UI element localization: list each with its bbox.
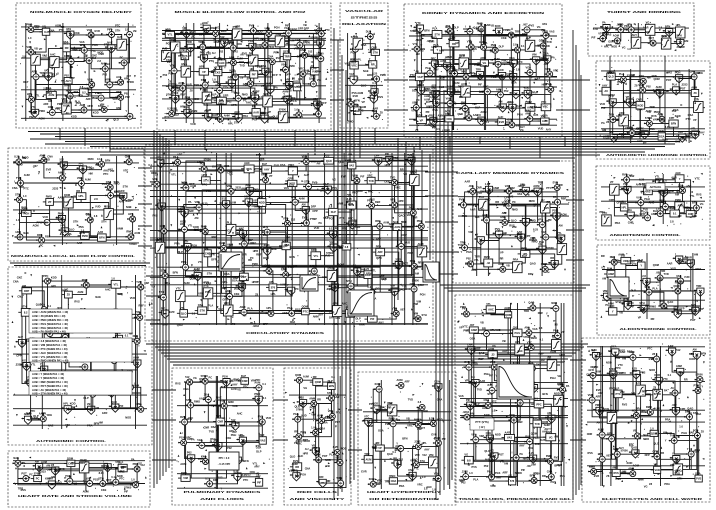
svg-text:VIM: VIM bbox=[182, 26, 187, 30]
svg-text:PGH: PGH bbox=[517, 113, 523, 117]
svg-text:PMO: PMO bbox=[181, 471, 187, 475]
svg-text:QAO: QAO bbox=[687, 407, 693, 411]
svg-text:PLA: PLA bbox=[619, 72, 624, 76]
svg-text:PVS: PVS bbox=[252, 117, 257, 121]
svg-text:512: 512 bbox=[222, 197, 227, 201]
svg-text:Y: Y bbox=[672, 451, 674, 455]
svg-text:VP: VP bbox=[638, 315, 642, 319]
svg-text:.3333: .3333 bbox=[462, 410, 469, 414]
svg-text:AAR: AAR bbox=[620, 350, 626, 354]
svg-text:CIRCULATORY DYNAMICS: CIRCULATORY DYNAMICS bbox=[246, 331, 325, 335]
svg-text:OSA: OSA bbox=[511, 81, 517, 85]
svg-text:PMO: PMO bbox=[460, 305, 466, 309]
svg-text:VUD: VUD bbox=[266, 82, 272, 86]
svg-text:VAS: VAS bbox=[311, 159, 316, 163]
svg-text:2.8: 2.8 bbox=[22, 54, 26, 58]
svg-text:RBF: RBF bbox=[538, 311, 544, 315]
svg-text:PRA: PRA bbox=[399, 484, 405, 488]
svg-text:PLA: PLA bbox=[227, 220, 232, 224]
svg-text:PC: PC bbox=[232, 322, 236, 326]
svg-text:AM: AM bbox=[421, 33, 425, 37]
svg-text:Y: Y bbox=[461, 250, 463, 254]
svg-text:TRR: TRR bbox=[150, 180, 155, 184]
svg-text:TRR: TRR bbox=[538, 181, 543, 185]
svg-text:PMO: PMO bbox=[546, 454, 552, 458]
svg-text:VTL: VTL bbox=[670, 463, 675, 467]
svg-text:TRR: TRR bbox=[18, 487, 23, 491]
svg-text:DFP: DFP bbox=[37, 233, 42, 237]
svg-text:BFN: BFN bbox=[99, 236, 104, 240]
svg-text:VUD: VUD bbox=[232, 404, 238, 408]
svg-text:RVS: RVS bbox=[651, 114, 657, 118]
svg-text:QOM: QOM bbox=[608, 71, 614, 75]
svg-text:AAR: AAR bbox=[199, 397, 205, 401]
svg-text:TRR: TRR bbox=[393, 156, 398, 160]
svg-text:QLO: QLO bbox=[653, 442, 659, 446]
svg-text:VB: VB bbox=[181, 48, 185, 52]
svg-text:512: 512 bbox=[244, 195, 249, 199]
svg-text:AAR: AAR bbox=[359, 323, 365, 327]
svg-text:RBF: RBF bbox=[119, 196, 125, 200]
svg-text:.3333: .3333 bbox=[395, 257, 402, 261]
svg-text:PTC: PTC bbox=[629, 443, 634, 447]
svg-text:AOM: AOM bbox=[338, 263, 344, 267]
svg-text:P02: P02 bbox=[316, 101, 321, 105]
svg-text:ANM: ANM bbox=[300, 48, 306, 52]
svg-text:57600: 57600 bbox=[231, 112, 239, 116]
svg-text:QAO: QAO bbox=[177, 323, 183, 327]
svg-text:AAR: AAR bbox=[498, 262, 504, 266]
svg-text:POT: POT bbox=[322, 454, 328, 458]
svg-text:RR: RR bbox=[495, 200, 499, 204]
svg-text:PGH: PGH bbox=[248, 39, 254, 43]
svg-text:VG: VG bbox=[216, 25, 220, 29]
svg-text:AHC: AHC bbox=[105, 288, 111, 292]
svg-text:OSA: OSA bbox=[378, 429, 384, 433]
svg-text:PLA: PLA bbox=[247, 306, 252, 310]
svg-text:VB: VB bbox=[403, 172, 407, 176]
svg-text:VTL: VTL bbox=[474, 258, 479, 262]
svg-text:VRC: VRC bbox=[395, 186, 401, 190]
svg-text:VTC: VTC bbox=[695, 176, 700, 180]
svg-text:HPL: HPL bbox=[217, 58, 223, 62]
svg-text:AOM: AOM bbox=[397, 378, 403, 382]
svg-text:512: 512 bbox=[197, 438, 202, 442]
svg-text:OSA: OSA bbox=[86, 212, 92, 216]
svg-text:PC: PC bbox=[36, 477, 40, 481]
svg-text:VIM: VIM bbox=[532, 53, 537, 57]
svg-text:PA: PA bbox=[566, 384, 570, 388]
svg-text:1.0: 1.0 bbox=[537, 76, 541, 80]
svg-text:AUM: AUM bbox=[85, 178, 91, 182]
svg-text:CNA: CNA bbox=[586, 372, 592, 376]
svg-text:.007: .007 bbox=[400, 308, 406, 312]
svg-text:PA: PA bbox=[520, 452, 524, 456]
svg-text:VIM: VIM bbox=[479, 434, 484, 438]
svg-text:VTL: VTL bbox=[261, 84, 266, 88]
svg-text:Y: Y bbox=[196, 275, 198, 279]
svg-text:AOM: AOM bbox=[180, 462, 186, 466]
svg-text:DLP: DLP bbox=[631, 288, 636, 292]
svg-text:57600: 57600 bbox=[127, 80, 135, 84]
svg-text:HPR: HPR bbox=[32, 110, 38, 114]
svg-text:AUB = Y (WHEN PA1 < 40): AUB = Y (WHEN PA1 < 40) bbox=[32, 372, 64, 376]
svg-text:BFN: BFN bbox=[366, 272, 371, 276]
svg-text:PRA: PRA bbox=[636, 406, 642, 410]
svg-text:PTC: PTC bbox=[410, 73, 415, 77]
svg-text:PMO: PMO bbox=[21, 210, 27, 214]
svg-text:PGS: PGS bbox=[375, 481, 381, 485]
svg-text:VG: VG bbox=[700, 202, 704, 206]
svg-text:AUB = PTC (WHEN PA1 < 40): AUB = PTC (WHEN PA1 < 40) bbox=[32, 347, 68, 351]
svg-text:PLA: PLA bbox=[546, 82, 551, 86]
svg-text:VP: VP bbox=[269, 174, 273, 178]
svg-text:2.8: 2.8 bbox=[642, 274, 646, 278]
svg-text:Y: Y bbox=[687, 447, 689, 451]
svg-text:STH: STH bbox=[123, 185, 128, 189]
svg-text:VUD: VUD bbox=[190, 122, 196, 126]
svg-text:PIF: PIF bbox=[385, 152, 389, 156]
svg-text:P02: P02 bbox=[163, 73, 168, 77]
svg-text:OSA: OSA bbox=[611, 345, 617, 349]
svg-text:DFP: DFP bbox=[239, 60, 244, 64]
svg-text:PIF: PIF bbox=[285, 24, 289, 28]
svg-text:OSA: OSA bbox=[320, 427, 326, 431]
svg-text:PRA: PRA bbox=[322, 421, 328, 425]
svg-text:AUB = AU (WHEN PA1 < 40): AUB = AU (WHEN PA1 < 40) bbox=[32, 388, 66, 392]
svg-text:HM: HM bbox=[426, 104, 430, 108]
svg-text:VUD: VUD bbox=[538, 126, 544, 130]
svg-text:1.0: 1.0 bbox=[546, 459, 550, 463]
svg-text:AHY: AHY bbox=[597, 421, 603, 425]
svg-text:VIM: VIM bbox=[415, 453, 420, 457]
svg-text:NOD: NOD bbox=[530, 105, 536, 109]
svg-text:AHY: AHY bbox=[64, 200, 70, 204]
svg-text:AAR: AAR bbox=[334, 395, 340, 399]
svg-text:PIF: PIF bbox=[360, 175, 364, 179]
svg-text:8.25: 8.25 bbox=[529, 451, 535, 455]
svg-text:8.25: 8.25 bbox=[289, 184, 295, 188]
svg-text:DLP: DLP bbox=[324, 182, 329, 186]
svg-text:RR: RR bbox=[660, 451, 664, 455]
svg-text:CAPILLARY MEMBRANE DYNAMICS: CAPILLARY MEMBRANE DYNAMICS bbox=[456, 171, 565, 175]
svg-text:AOM: AOM bbox=[292, 462, 298, 466]
svg-text:KOD: KOD bbox=[654, 373, 660, 377]
svg-text:HPL: HPL bbox=[315, 69, 321, 73]
svg-text:QLO: QLO bbox=[113, 118, 119, 122]
svg-text:VIM: VIM bbox=[144, 281, 149, 285]
svg-text:VTC: VTC bbox=[621, 371, 626, 375]
svg-text:ARF: ARF bbox=[471, 268, 477, 272]
svg-text:.007: .007 bbox=[675, 190, 681, 194]
svg-text:NOD: NOD bbox=[649, 368, 655, 372]
svg-text:2.8: 2.8 bbox=[94, 197, 98, 201]
svg-text:57600: 57600 bbox=[654, 392, 662, 396]
svg-text:AHY: AHY bbox=[678, 130, 684, 134]
svg-text:STH: STH bbox=[469, 347, 474, 351]
svg-text:ANM: ANM bbox=[213, 80, 219, 84]
svg-text:0.1: 0.1 bbox=[48, 304, 52, 308]
svg-text:HM: HM bbox=[22, 284, 26, 288]
svg-text:KOD: KOD bbox=[230, 68, 236, 72]
svg-text:VG: VG bbox=[537, 25, 541, 29]
svg-text:Y: Y bbox=[420, 43, 422, 47]
svg-text:QLO: QLO bbox=[273, 115, 279, 119]
svg-text:RR: RR bbox=[678, 214, 682, 218]
svg-text:PTC: PTC bbox=[303, 310, 308, 314]
svg-text:AM: AM bbox=[35, 459, 39, 463]
svg-text:PGS: PGS bbox=[239, 275, 245, 279]
svg-text:AOM: AOM bbox=[480, 110, 486, 114]
svg-text:.3333: .3333 bbox=[426, 39, 433, 43]
svg-text:8.25: 8.25 bbox=[429, 416, 435, 420]
svg-text:AHM: AHM bbox=[357, 91, 363, 95]
svg-text:VP: VP bbox=[202, 70, 206, 74]
svg-text:VG: VG bbox=[646, 20, 650, 24]
svg-text:HPL: HPL bbox=[128, 212, 134, 216]
svg-text:1.0: 1.0 bbox=[28, 36, 32, 40]
svg-text:VTC: VTC bbox=[294, 46, 299, 50]
svg-text:VTC: VTC bbox=[663, 377, 668, 381]
svg-text:STH: STH bbox=[639, 301, 644, 305]
svg-text:POT: POT bbox=[351, 50, 357, 54]
svg-text:P02: P02 bbox=[64, 74, 69, 78]
svg-text:DLP: DLP bbox=[331, 210, 336, 214]
svg-text:POT: POT bbox=[445, 109, 451, 113]
svg-text:VTL: VTL bbox=[313, 254, 318, 258]
svg-text:PGS: PGS bbox=[673, 108, 679, 112]
svg-text:0.1: 0.1 bbox=[368, 59, 372, 63]
svg-text:.3333: .3333 bbox=[414, 439, 421, 443]
svg-text:AUM: AUM bbox=[639, 182, 645, 186]
svg-text:QLO: QLO bbox=[638, 258, 644, 262]
svg-text:DLP: DLP bbox=[614, 386, 619, 390]
svg-text:POT: POT bbox=[420, 426, 426, 430]
svg-text:TRR: TRR bbox=[475, 254, 480, 258]
svg-text:AM: AM bbox=[416, 52, 420, 56]
svg-text:ANM: ANM bbox=[191, 109, 197, 113]
svg-text:PGH: PGH bbox=[82, 278, 88, 282]
svg-text:PPC: PPC bbox=[181, 260, 186, 264]
svg-text:AUB = PMO (WHEN PA1 < 40): AUB = PMO (WHEN PA1 < 40) bbox=[32, 318, 68, 322]
svg-text:BFN: BFN bbox=[289, 255, 294, 259]
svg-text:NOD: NOD bbox=[325, 458, 331, 462]
svg-text:PLA: PLA bbox=[432, 27, 437, 31]
svg-text:AUB = AHC (WHEN PA1 < 40): AUB = AHC (WHEN PA1 < 40) bbox=[32, 351, 68, 355]
svg-text:P02: P02 bbox=[504, 89, 509, 93]
svg-text:STH: STH bbox=[593, 27, 598, 31]
svg-text:AHC: AHC bbox=[488, 308, 494, 312]
svg-text:512: 512 bbox=[220, 35, 225, 39]
svg-text:PIF: PIF bbox=[680, 135, 684, 139]
svg-text:Y: Y bbox=[415, 169, 417, 173]
svg-text:KOD: KOD bbox=[484, 413, 490, 417]
svg-text:PGS: PGS bbox=[613, 117, 619, 121]
svg-text:AU: AU bbox=[619, 23, 623, 27]
svg-text:PIF: PIF bbox=[124, 489, 128, 493]
svg-text:PGS: PGS bbox=[299, 396, 305, 400]
svg-text:EVR: EVR bbox=[46, 168, 51, 172]
svg-text:P02: P02 bbox=[74, 90, 79, 94]
svg-text:PLA: PLA bbox=[75, 100, 80, 104]
svg-text:AU: AU bbox=[229, 379, 233, 383]
svg-text:TVD: TVD bbox=[136, 280, 141, 284]
svg-text:QLO: QLO bbox=[181, 311, 187, 315]
svg-text:AHY: AHY bbox=[369, 96, 375, 100]
svg-text:VAS: VAS bbox=[676, 274, 681, 278]
svg-text:OSA: OSA bbox=[688, 113, 694, 117]
svg-text:CKE: CKE bbox=[447, 117, 453, 121]
svg-text:CNA: CNA bbox=[268, 55, 274, 59]
svg-text:DLP: DLP bbox=[328, 379, 333, 383]
svg-text:VTL: VTL bbox=[200, 23, 205, 27]
svg-text:AHM: AHM bbox=[299, 196, 305, 200]
svg-text:VB: VB bbox=[631, 391, 635, 395]
svg-text:PMO: PMO bbox=[677, 259, 683, 263]
svg-text:2.8: 2.8 bbox=[329, 205, 333, 209]
svg-text:PIF: PIF bbox=[105, 464, 109, 468]
svg-text:RVS: RVS bbox=[180, 415, 186, 419]
svg-text:CKE: CKE bbox=[47, 413, 53, 417]
svg-text:NOD: NOD bbox=[606, 361, 612, 365]
svg-text:AM: AM bbox=[602, 276, 606, 280]
svg-text:RR: RR bbox=[342, 227, 346, 231]
svg-text:PPC: PPC bbox=[43, 274, 48, 278]
svg-text:EVR: EVR bbox=[431, 432, 436, 436]
svg-text:VG: VG bbox=[48, 278, 52, 282]
svg-text:57600: 57600 bbox=[129, 242, 137, 246]
svg-text:HPL: HPL bbox=[640, 308, 646, 312]
svg-text:PIF: PIF bbox=[591, 35, 595, 39]
svg-text:CNA: CNA bbox=[615, 477, 621, 481]
svg-text:OSA: OSA bbox=[412, 88, 418, 92]
svg-text:PC: PC bbox=[71, 461, 75, 465]
svg-text:AHY: AHY bbox=[602, 84, 608, 88]
svg-text:VIM: VIM bbox=[227, 184, 232, 188]
svg-text:TVD: TVD bbox=[458, 243, 463, 247]
svg-text:Y: Y bbox=[178, 112, 180, 116]
svg-text:CKE: CKE bbox=[639, 74, 645, 78]
svg-text:DFP: DFP bbox=[70, 76, 75, 80]
svg-text:OR DETERIORATION: OR DETERIORATION bbox=[369, 497, 439, 501]
svg-text:TVD: TVD bbox=[479, 207, 484, 211]
svg-text:CKE: CKE bbox=[237, 42, 243, 46]
svg-text:PC: PC bbox=[192, 35, 196, 39]
svg-text:DLP: DLP bbox=[475, 106, 480, 110]
svg-text:AM: AM bbox=[547, 411, 551, 415]
svg-text:ARF: ARF bbox=[318, 475, 324, 479]
svg-text:AHC: AHC bbox=[649, 201, 655, 205]
svg-text:POT: POT bbox=[403, 261, 409, 265]
svg-text:VTC: VTC bbox=[632, 262, 637, 266]
svg-text:CKE: CKE bbox=[234, 292, 240, 296]
svg-text:AHM: AHM bbox=[418, 242, 424, 246]
svg-text:HPR: HPR bbox=[603, 134, 609, 138]
svg-text:KOD: KOD bbox=[193, 225, 199, 229]
svg-text:EVR: EVR bbox=[596, 388, 601, 392]
svg-text:PPC: PPC bbox=[202, 183, 207, 187]
svg-text:AAR: AAR bbox=[58, 196, 64, 200]
svg-text:DLP: DLP bbox=[84, 396, 89, 400]
svg-text:QOM: QOM bbox=[315, 380, 321, 384]
svg-text:8.25: 8.25 bbox=[14, 155, 20, 159]
svg-text:TISSUE FLUIDS, PRESSURES AND G: TISSUE FLUIDS, PRESSURES AND GEL bbox=[459, 497, 573, 501]
svg-text:RMO: RMO bbox=[389, 417, 395, 421]
svg-text:VRC: VRC bbox=[407, 424, 413, 428]
svg-text:ARF: ARF bbox=[105, 78, 111, 82]
svg-text:BFN: BFN bbox=[663, 307, 668, 311]
svg-text:Y: Y bbox=[522, 214, 524, 218]
svg-text:PGS: PGS bbox=[102, 182, 108, 186]
svg-text:AHM: AHM bbox=[224, 113, 230, 117]
svg-text:AUTONOMIC CONTROL: AUTONOMIC CONTROL bbox=[36, 439, 107, 443]
svg-text:PTC: PTC bbox=[91, 49, 96, 53]
svg-text:AUM: AUM bbox=[134, 231, 140, 235]
svg-text:P02: P02 bbox=[528, 446, 533, 450]
svg-text:RMO: RMO bbox=[250, 241, 256, 245]
svg-text:AU: AU bbox=[257, 97, 261, 101]
svg-text:PGH: PGH bbox=[675, 71, 681, 75]
svg-text:Y: Y bbox=[57, 71, 59, 75]
svg-text:KOD: KOD bbox=[638, 103, 644, 107]
svg-text:AU: AU bbox=[604, 89, 608, 93]
svg-text:.3333: .3333 bbox=[694, 267, 701, 271]
svg-text:.3333: .3333 bbox=[326, 287, 333, 291]
svg-text:AU: AU bbox=[212, 51, 216, 55]
svg-text:QOM: QOM bbox=[541, 262, 547, 266]
svg-text:VRC: VRC bbox=[255, 378, 261, 382]
svg-text:NOD: NOD bbox=[554, 391, 560, 395]
svg-text:AHY: AHY bbox=[507, 101, 513, 105]
svg-text:TRR: TRR bbox=[72, 48, 77, 52]
svg-text:PC: PC bbox=[512, 200, 516, 204]
svg-text:AUB = PGS (WHEN PA1 < 40): AUB = PGS (WHEN PA1 < 40) bbox=[32, 322, 68, 326]
svg-text:PTT=(VTS): PTT=(VTS) bbox=[475, 420, 488, 424]
svg-text:STH: STH bbox=[645, 285, 650, 289]
svg-text:KOD: KOD bbox=[689, 357, 695, 361]
svg-text:AHM: AHM bbox=[544, 423, 550, 427]
svg-text:AHY: AHY bbox=[502, 349, 508, 353]
svg-text:BFN: BFN bbox=[367, 73, 372, 77]
svg-text:PMO: PMO bbox=[57, 102, 63, 106]
svg-text:PTC: PTC bbox=[256, 444, 261, 448]
svg-text:TRR: TRR bbox=[524, 309, 529, 313]
svg-text:PTC: PTC bbox=[546, 186, 551, 190]
svg-text:VG: VG bbox=[434, 471, 438, 475]
svg-text:RMO: RMO bbox=[389, 474, 395, 478]
svg-text:RR: RR bbox=[459, 95, 463, 99]
svg-text:RMO: RMO bbox=[126, 230, 132, 234]
svg-text:57600: 57600 bbox=[619, 132, 627, 136]
svg-text:VP: VP bbox=[626, 95, 630, 99]
svg-text:PA: PA bbox=[319, 221, 323, 225]
svg-text:HPR: HPR bbox=[253, 249, 259, 253]
svg-text:ARF: ARF bbox=[43, 102, 49, 106]
svg-text:AOM: AOM bbox=[367, 424, 373, 428]
svg-text:PPI = 2.0: PPI = 2.0 bbox=[219, 456, 230, 460]
svg-text:AM: AM bbox=[559, 224, 563, 228]
svg-text:2.8: 2.8 bbox=[282, 238, 286, 242]
svg-text:RR: RR bbox=[651, 317, 655, 321]
svg-text:AOM: AOM bbox=[633, 464, 639, 468]
svg-text:57600: 57600 bbox=[296, 408, 304, 412]
svg-text:QAO: QAO bbox=[530, 261, 536, 265]
svg-text:VAS: VAS bbox=[233, 50, 238, 54]
svg-text:512: 512 bbox=[422, 453, 427, 457]
svg-text:BFN: BFN bbox=[94, 422, 99, 426]
svg-text:Y: Y bbox=[602, 409, 604, 413]
svg-text:HM: HM bbox=[361, 268, 365, 272]
